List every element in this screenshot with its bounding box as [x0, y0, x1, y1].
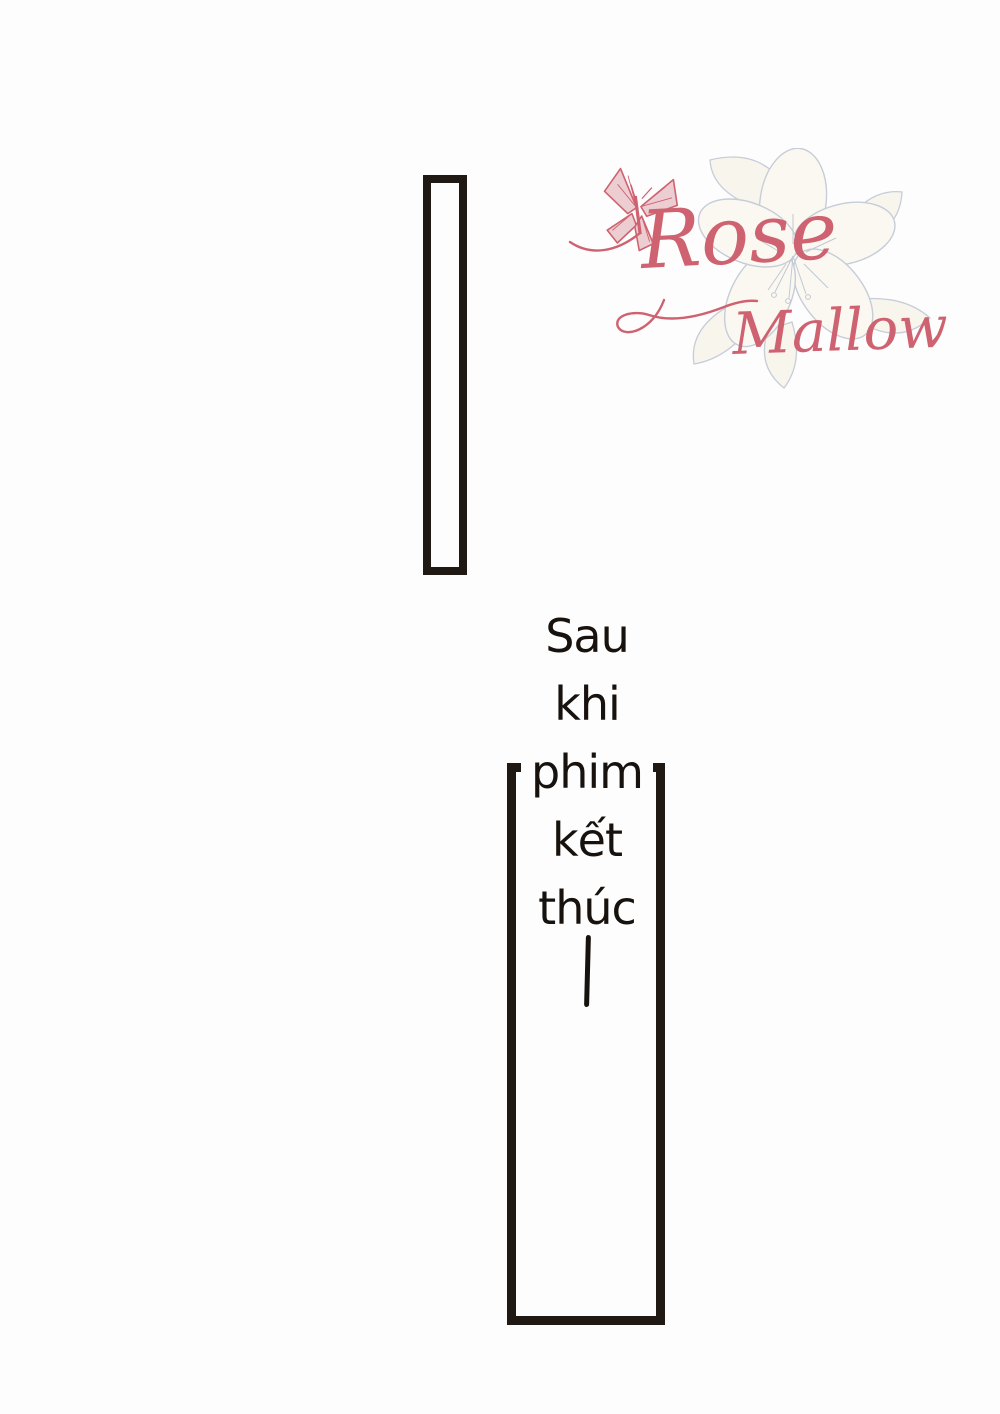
rose-mallow-logo: Rose Mallow [555, 148, 950, 393]
comic-page: Rose Mallow Sau khi phim kết thúc [0, 0, 1000, 1414]
caption-word-4: kết [487, 806, 687, 874]
panel-frame-small [423, 175, 467, 575]
caption-word-2: khi [487, 670, 687, 738]
caption-word-1: Sau [487, 602, 687, 670]
caption-word-3: phim [487, 738, 687, 806]
logo-word-rose: Rose [636, 184, 839, 287]
caption-vertical-text: Sau khi phim kết thúc [487, 602, 687, 942]
logo-word-mallow: Mallow [730, 293, 949, 369]
caption-word-5: thúc [487, 874, 687, 942]
